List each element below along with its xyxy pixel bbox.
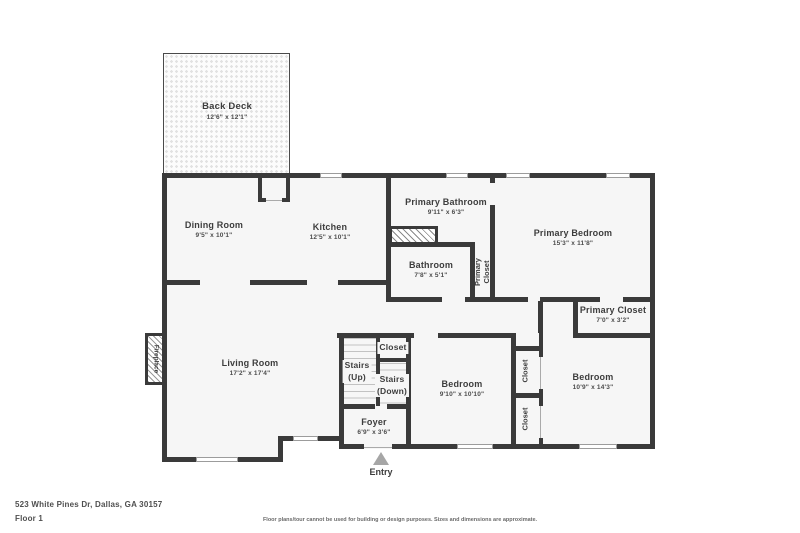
- closet-door-opening: [540, 406, 541, 438]
- room-label-stairs-down: Stairs (Down): [375, 374, 409, 397]
- wall: [539, 333, 544, 357]
- wall: [386, 242, 474, 247]
- room-label-fireplace: Fireplace: [151, 345, 160, 374]
- room-label-primary-closet-hall: Primary Closet: [473, 258, 491, 286]
- wall: [162, 280, 200, 285]
- room-label-closet-lower: Closet: [521, 408, 530, 431]
- wall: [623, 297, 655, 302]
- room-label-foyer: Foyer 6'9" x 3'6": [357, 416, 390, 438]
- address-text: 523 White Pines Dr, Dallas, GA 30157: [15, 500, 162, 509]
- wall: [490, 173, 495, 183]
- room-label-kitchen: Kitchen 12'5" x 10'1": [310, 221, 351, 243]
- room-label-stairs-up: Stairs (Up): [343, 360, 372, 383]
- room-label-primary-bedroom: Primary Bedroom 15'3" x 11'8": [534, 227, 613, 249]
- floor-plan-canvas: Back Deck 12'6" x 12'1" Dining Room 9'5"…: [0, 0, 800, 533]
- wall: [258, 198, 266, 202]
- exterior-patch: [283, 441, 340, 449]
- room-label-primary-closet: Primary Closet 7'0" x 3'2": [580, 304, 646, 326]
- wall: [387, 404, 410, 409]
- wall: [465, 297, 528, 302]
- entry-label: Entry: [369, 467, 392, 477]
- closet-door-opening: [540, 357, 541, 389]
- window: [579, 444, 617, 449]
- window: [446, 173, 468, 178]
- wall: [540, 297, 600, 302]
- wall: [539, 438, 544, 449]
- wall: [340, 444, 364, 449]
- wall: [573, 301, 578, 337]
- disclaimer-text: Floor plans/tour cannot be used for buil…: [0, 517, 800, 523]
- room-label-bathroom: Bathroom 7'8" x 5'1": [409, 259, 453, 281]
- wall: [386, 297, 442, 302]
- wall: [376, 358, 410, 362]
- wall: [162, 173, 655, 178]
- room-label-closet-upper: Closet: [521, 360, 530, 383]
- wall: [490, 205, 495, 301]
- wall: [338, 280, 386, 285]
- wall: [538, 301, 543, 333]
- wall: [250, 280, 307, 285]
- window: [457, 444, 493, 449]
- wall: [162, 173, 167, 462]
- entry-door-opening: [364, 447, 392, 448]
- window: [606, 173, 630, 178]
- wall: [650, 173, 655, 449]
- door-opening: [266, 200, 282, 201]
- window: [196, 457, 238, 462]
- room-label-bedroom-right: Bedroom 10'9" x 14'3": [573, 371, 614, 393]
- room-label-stairs-closet: Closet: [377, 342, 408, 354]
- window: [320, 173, 342, 178]
- room-label-primary-bathroom: Primary Bathroom 9'11" x 6'3": [405, 196, 487, 218]
- room-label-back-deck: Back Deck 12'6" x 12'1": [202, 101, 252, 123]
- wall: [339, 404, 375, 409]
- room-label-bedroom-middle: Bedroom 9'10" x 10'10": [440, 378, 485, 400]
- window: [506, 173, 530, 178]
- wall: [438, 333, 516, 338]
- window: [293, 436, 318, 441]
- wall: [282, 198, 290, 202]
- wall: [339, 333, 344, 449]
- room-label-dining-room: Dining Room 9'5" x 10'1": [185, 219, 243, 241]
- wall: [573, 333, 655, 338]
- entry-arrow-icon: [373, 452, 389, 465]
- wall: [539, 389, 544, 406]
- room-label-living-room: Living Room 17'2" x 17'4": [222, 357, 279, 379]
